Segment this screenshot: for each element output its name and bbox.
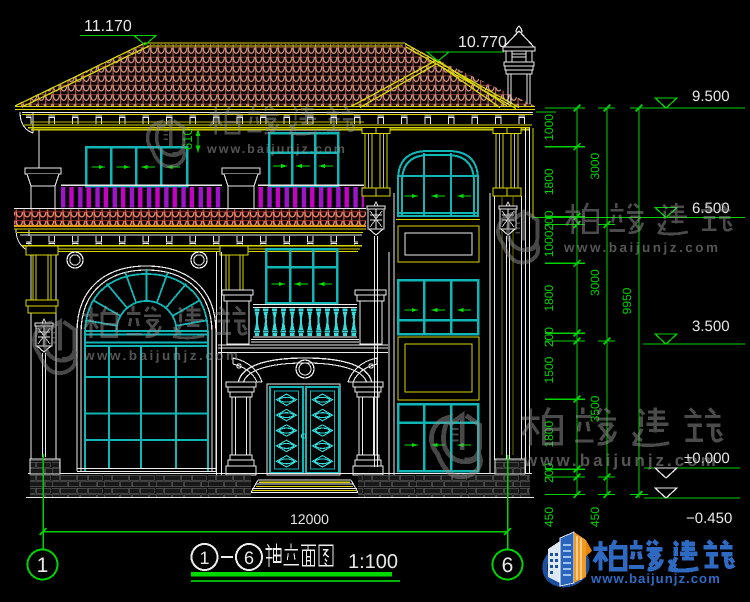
svg-text:1500: 1500 [542,356,556,383]
svg-text:www.baijunjz.com: www.baijunjz.com [83,348,241,363]
svg-text:3.500: 3.500 [692,318,730,335]
svg-text:11.170: 11.170 [84,18,132,35]
svg-text:1800: 1800 [542,285,556,312]
svg-text:1800: 1800 [542,168,556,195]
svg-text:www.baijunjz.com: www.baijunjz.com [523,451,719,470]
svg-text:3000: 3000 [588,153,602,180]
svg-text:1:100: 1:100 [348,551,398,573]
svg-text:10.770: 10.770 [458,34,507,51]
svg-text:200: 200 [542,327,556,347]
svg-text:www.baijunjz.com: www.baijunjz.com [590,571,721,586]
svg-text:www.baijunjz.com: www.baijunjz.com [563,240,721,255]
svg-text:3000: 3000 [588,269,602,296]
svg-text:9950: 9950 [620,287,634,314]
svg-text:1: 1 [199,548,209,568]
svg-text:6: 6 [244,548,254,568]
svg-text:9.500: 9.500 [692,88,730,105]
svg-text:200: 200 [542,210,556,230]
svg-text:450: 450 [542,507,556,527]
svg-text:www.baijunjz.com: www.baijunjz.com [206,142,347,156]
svg-text:−0.450: −0.450 [686,510,732,527]
svg-text:12000: 12000 [290,511,329,527]
svg-text:1000: 1000 [542,230,556,257]
svg-text:1000: 1000 [542,114,556,141]
svg-text:6: 6 [502,554,514,577]
svg-text:450: 450 [588,507,602,527]
svg-text:1: 1 [37,554,49,577]
